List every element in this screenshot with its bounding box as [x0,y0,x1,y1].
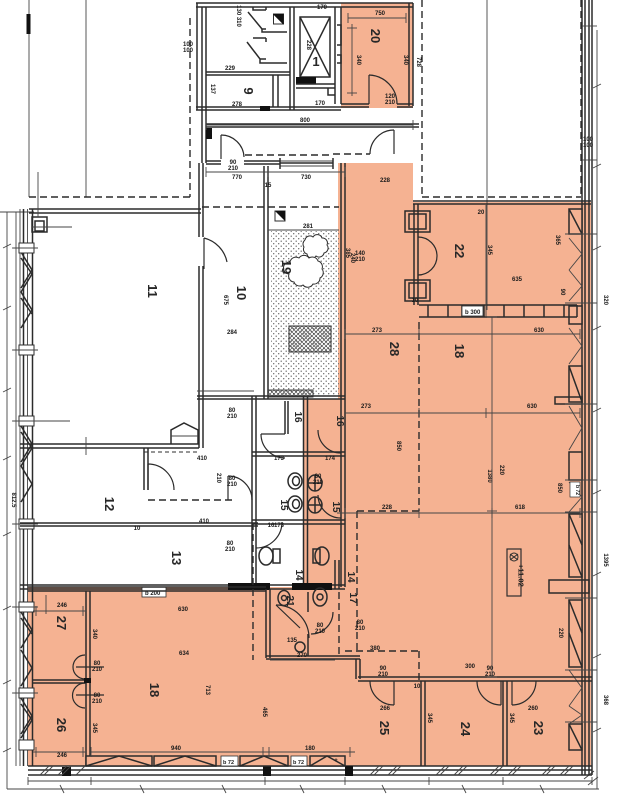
svg-text:635: 635 [512,277,523,283]
svg-text:210: 210 [315,629,326,635]
svg-text:246: 246 [57,603,68,609]
svg-text:+11.02: +11.02 [517,564,526,587]
svg-text:11: 11 [145,284,160,298]
svg-text:220: 220 [557,628,563,639]
svg-text:174: 174 [325,456,336,462]
svg-text:340: 340 [355,55,361,66]
svg-text:9: 9 [241,87,256,94]
svg-text:1: 1 [312,54,319,69]
svg-text:368: 368 [602,695,608,706]
svg-text:16: 16 [334,415,345,427]
svg-text:770: 770 [232,175,243,181]
svg-text:850: 850 [395,441,401,452]
svg-text:28: 28 [387,342,402,356]
svg-text:273: 273 [372,328,383,334]
svg-text:17: 17 [347,592,358,604]
svg-text:15: 15 [278,499,289,511]
svg-text:266: 266 [380,706,391,712]
svg-text:16: 16 [292,411,303,423]
svg-text:210: 210 [92,699,103,705]
svg-text:340: 340 [91,629,97,640]
svg-text:750: 750 [375,11,386,17]
svg-text:210: 210 [313,480,324,486]
svg-text:340: 340 [402,55,408,66]
svg-text:220: 220 [498,465,504,476]
svg-text:229: 229 [225,66,236,72]
svg-text:210: 210 [227,482,238,488]
svg-text:940: 940 [171,746,182,752]
svg-text:173: 173 [274,523,285,529]
svg-text:228: 228 [382,505,393,511]
svg-text:273: 273 [361,404,372,410]
svg-text:675: 675 [222,295,228,306]
svg-text:20: 20 [368,29,383,43]
svg-text:b 300: b 300 [465,310,481,316]
svg-text:173: 173 [274,456,285,462]
svg-text:180: 180 [305,746,316,752]
svg-text:15: 15 [265,183,272,189]
svg-text:14: 14 [293,569,304,581]
svg-text:210: 210 [355,257,366,263]
svg-text:b 72: b 72 [293,760,304,766]
svg-text:812.5: 812.5 [10,492,16,508]
svg-text:130 310: 130 310 [235,5,241,27]
svg-text:25: 25 [377,721,392,735]
svg-text:1380: 1380 [486,469,492,483]
svg-text:300: 300 [465,664,476,670]
svg-text:15: 15 [330,501,341,513]
svg-text:210: 210 [215,473,221,484]
svg-text:634: 634 [179,651,190,657]
svg-text:800: 800 [300,118,311,124]
svg-text:284: 284 [227,330,238,336]
svg-text:135: 135 [287,638,298,644]
svg-text:22: 22 [452,244,467,258]
svg-text:465: 465 [261,707,267,718]
svg-text:170: 170 [317,5,328,11]
svg-text:21: 21 [284,595,295,607]
svg-text:410: 410 [197,456,208,462]
svg-text:26: 26 [54,718,69,732]
svg-text:270: 270 [297,653,308,659]
svg-text:14: 14 [345,571,356,583]
svg-text:345: 345 [426,713,432,724]
svg-text:630: 630 [534,328,545,334]
svg-text:210: 210 [225,547,236,553]
svg-text:10: 10 [234,286,249,300]
svg-text:228: 228 [305,40,311,51]
svg-text:10: 10 [414,684,421,690]
svg-text:345: 345 [91,723,97,734]
svg-text:281: 281 [303,224,314,230]
svg-text:10: 10 [412,298,419,304]
svg-text:365: 365 [554,235,560,246]
svg-text:210: 210 [378,672,389,678]
svg-text:385: 385 [344,248,350,259]
svg-text:1395: 1395 [602,553,608,567]
svg-text:12: 12 [102,497,117,511]
svg-text:13: 13 [169,551,184,565]
svg-text:260: 260 [528,706,539,712]
svg-text:210: 210 [385,100,396,106]
svg-text:728: 728 [415,57,421,68]
svg-text:618: 618 [515,505,526,511]
svg-text:19: 19 [279,260,294,274]
svg-text:210: 210 [227,414,238,420]
svg-text:345: 345 [486,245,492,256]
svg-text:320: 320 [602,295,608,306]
svg-text:100: 100 [583,143,594,149]
svg-text:630: 630 [527,404,538,410]
svg-text:100: 100 [183,48,194,54]
svg-text:27: 27 [54,616,69,630]
svg-text:380: 380 [370,646,381,652]
svg-text:246: 246 [57,753,68,759]
svg-text:410: 410 [199,519,210,525]
svg-text:210: 210 [355,626,366,632]
svg-text:228: 228 [380,178,391,184]
svg-text:210: 210 [92,667,103,673]
svg-text:713: 713 [204,685,210,696]
svg-text:+: + [334,758,338,764]
svg-text:18: 18 [147,683,162,697]
svg-text:20: 20 [478,210,485,216]
svg-text:850: 850 [556,483,562,494]
svg-text:b 72: b 72 [574,485,580,495]
svg-text:23: 23 [531,721,546,735]
svg-text:b 200: b 200 [145,591,161,597]
svg-text:630: 630 [178,607,189,613]
svg-text:b 72: b 72 [223,760,234,766]
svg-text:137: 137 [209,84,215,95]
svg-text:278: 278 [232,102,243,108]
svg-text:24: 24 [458,722,473,737]
svg-text:90: 90 [559,289,565,296]
svg-text:210: 210 [228,166,239,172]
svg-text:10: 10 [134,526,141,532]
svg-text:18: 18 [452,344,467,358]
svg-text:170: 170 [315,101,326,107]
svg-text:345: 345 [508,713,514,724]
svg-text:730: 730 [301,175,312,181]
